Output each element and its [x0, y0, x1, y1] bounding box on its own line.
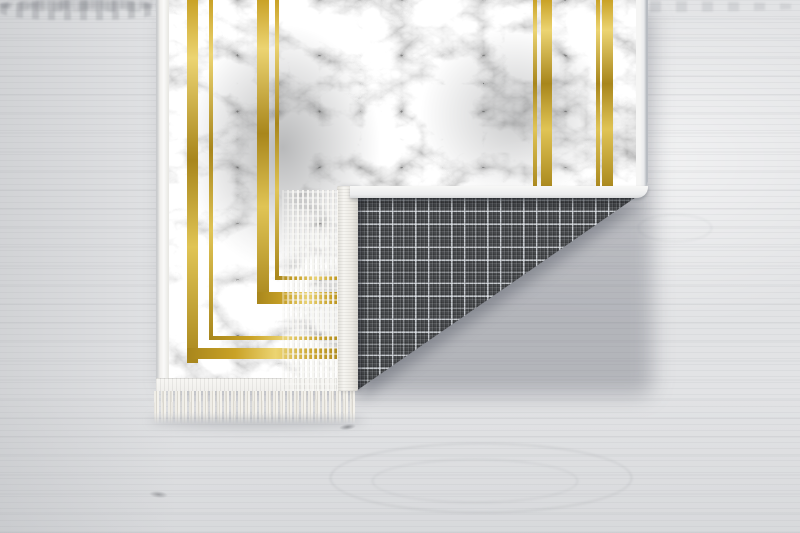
- folded-corner: [0, 0, 800, 533]
- rug-face-corner-binding: [350, 186, 648, 198]
- flap-edge-binding: [337, 186, 358, 391]
- plaid-rug-backing: [356, 196, 638, 392]
- product-photo: [0, 0, 800, 533]
- flap-edge-fringe: [282, 190, 338, 391]
